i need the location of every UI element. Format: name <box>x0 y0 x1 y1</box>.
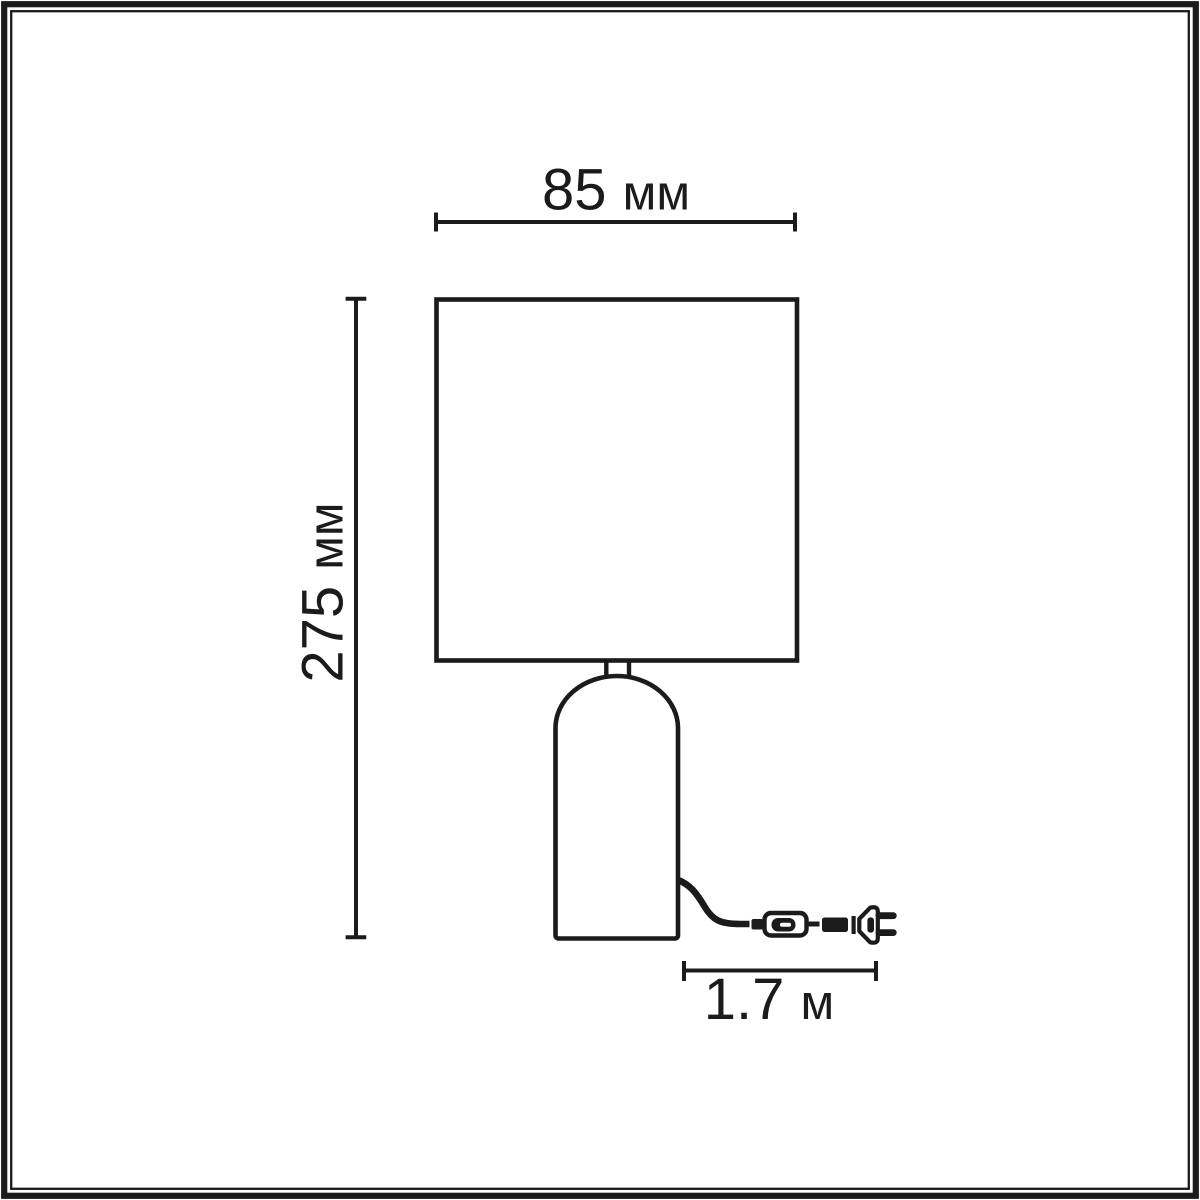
svg-text:85 мм: 85 мм <box>542 158 690 223</box>
svg-text:275 мм: 275 мм <box>291 502 356 682</box>
svg-text:1.7 м: 1.7 м <box>704 967 834 1032</box>
